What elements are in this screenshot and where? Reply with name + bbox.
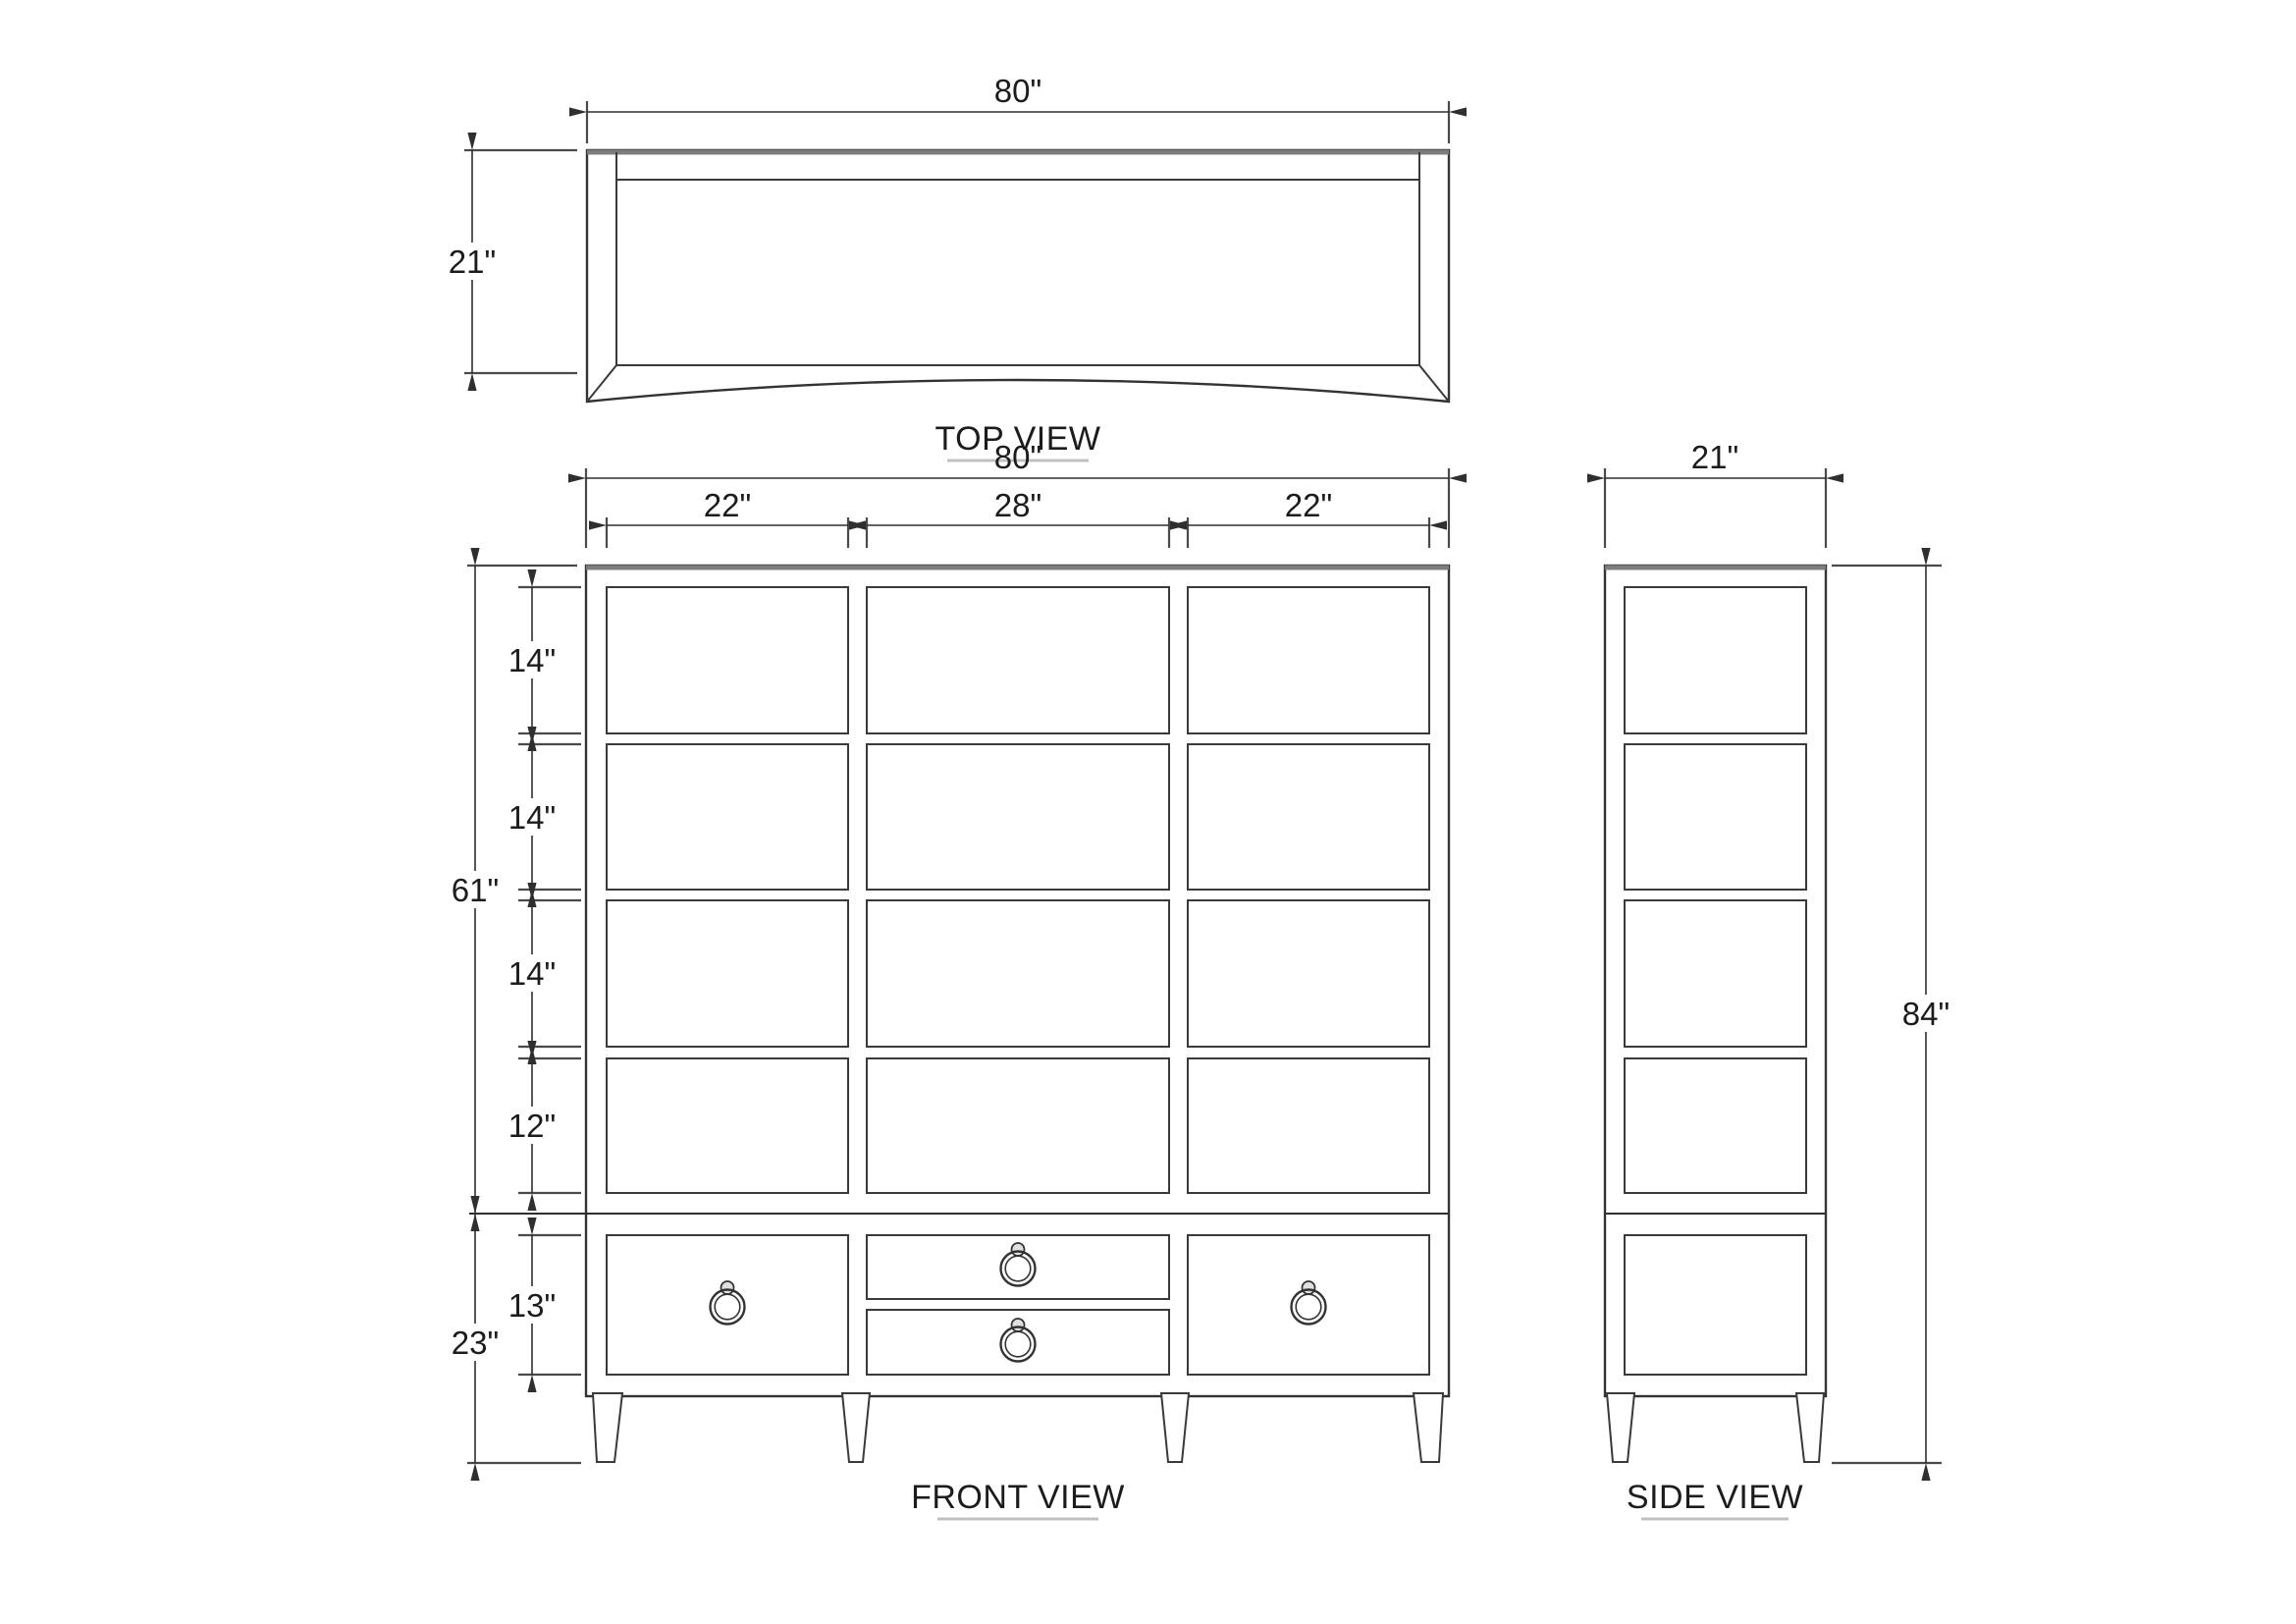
shelf-opening bbox=[607, 744, 848, 890]
front-upper-section-dim-label: 61" bbox=[452, 872, 499, 908]
front-shelf3-dim-label: 14" bbox=[508, 955, 556, 992]
pull-ring-inner bbox=[715, 1294, 740, 1320]
top-view-outline bbox=[587, 150, 1449, 402]
shelf-opening bbox=[867, 587, 1169, 733]
ring-pull-icon bbox=[711, 1281, 745, 1325]
side-height-dim-label: 84" bbox=[1902, 996, 1949, 1032]
dim-top-depth: 21" bbox=[439, 150, 577, 373]
pull-ring-inner bbox=[1296, 1294, 1321, 1320]
front-view: 80" 22" 28" 22" 61" bbox=[442, 439, 1449, 1519]
drawing-canvas: 80" 21" TOP VIEW bbox=[0, 0, 2296, 1624]
front-drawer-dim-label: 13" bbox=[508, 1287, 556, 1324]
pull-knob bbox=[1012, 1319, 1025, 1331]
dim-front-openings: 22" 28" 22" bbox=[607, 487, 1429, 548]
shelf-opening bbox=[1188, 1058, 1429, 1193]
ring-pull-icon bbox=[1001, 1243, 1036, 1286]
side-panel bbox=[1625, 587, 1806, 733]
pull-ring-inner bbox=[1005, 1256, 1031, 1281]
dim-side-height: 84" bbox=[1832, 566, 1959, 1463]
shelf-opening bbox=[607, 1058, 848, 1193]
shelf-opening bbox=[867, 1058, 1169, 1193]
side-panel bbox=[1625, 1235, 1806, 1375]
shelf-opening bbox=[867, 900, 1169, 1047]
top-view-left-miter bbox=[587, 365, 616, 402]
front-legs bbox=[593, 1393, 1443, 1462]
pull-knob bbox=[1012, 1243, 1025, 1256]
front-view-case bbox=[586, 566, 1449, 1396]
side-depth-dim-label: 21" bbox=[1691, 439, 1738, 475]
leg bbox=[1796, 1393, 1824, 1462]
leg bbox=[1414, 1393, 1443, 1462]
shelf-opening bbox=[867, 744, 1169, 890]
leg bbox=[1161, 1393, 1189, 1462]
dim-top-width: 80" bbox=[587, 73, 1449, 143]
side-legs bbox=[1607, 1393, 1824, 1462]
shelf-opening bbox=[1188, 587, 1429, 733]
pull-knob bbox=[1303, 1281, 1315, 1294]
top-view-right-miter bbox=[1419, 365, 1449, 402]
side-panel bbox=[1625, 900, 1806, 1047]
front-shelf-openings bbox=[607, 587, 1429, 1193]
top-view: 80" 21" TOP VIEW bbox=[439, 73, 1449, 460]
front-view-title: FRONT VIEW bbox=[911, 1479, 1125, 1516]
shelf-opening bbox=[1188, 744, 1429, 890]
ring-pull-icon bbox=[1001, 1319, 1036, 1362]
dim-side-depth: 21" bbox=[1605, 439, 1826, 548]
pull-ring-inner bbox=[1005, 1331, 1031, 1357]
shelf-opening bbox=[607, 587, 848, 733]
side-panel bbox=[1625, 1058, 1806, 1193]
front-center-opening-dim-label: 28" bbox=[994, 487, 1041, 523]
front-lower-section-dim-label: 23" bbox=[452, 1325, 499, 1361]
leg bbox=[1607, 1393, 1634, 1462]
side-view-case bbox=[1605, 566, 1826, 1396]
front-shelf1-dim-label: 14" bbox=[508, 642, 556, 678]
top-width-dim-label: 80" bbox=[994, 73, 1041, 109]
top-depth-dim-label: 21" bbox=[449, 244, 496, 280]
front-width-dim-label: 80" bbox=[994, 439, 1041, 475]
drawer-front bbox=[1188, 1235, 1429, 1375]
front-left-opening-dim-label: 22" bbox=[704, 487, 751, 523]
leg bbox=[842, 1393, 870, 1462]
front-shelf4-dim-label: 12" bbox=[508, 1108, 556, 1144]
furniture-technical-drawing: 80" 21" TOP VIEW bbox=[0, 0, 2296, 1624]
side-view: 21" 84" SIDE VIEW bbox=[1605, 439, 1959, 1519]
front-drawers bbox=[607, 1235, 1429, 1375]
side-panels bbox=[1625, 587, 1806, 1375]
dim-front-lower-section: 23" bbox=[442, 1214, 581, 1463]
drawer-front bbox=[607, 1235, 848, 1375]
shelf-opening bbox=[1188, 900, 1429, 1047]
dim-front-rows: 14" 14" 14" 12" 13" bbox=[499, 587, 581, 1375]
side-panel bbox=[1625, 744, 1806, 890]
pull-knob bbox=[721, 1281, 734, 1294]
front-right-opening-dim-label: 22" bbox=[1285, 487, 1332, 523]
shelf-opening bbox=[607, 900, 848, 1047]
front-shelf2-dim-label: 14" bbox=[508, 799, 556, 836]
ring-pull-icon bbox=[1292, 1281, 1326, 1325]
side-view-title: SIDE VIEW bbox=[1627, 1479, 1803, 1516]
leg bbox=[593, 1393, 622, 1462]
